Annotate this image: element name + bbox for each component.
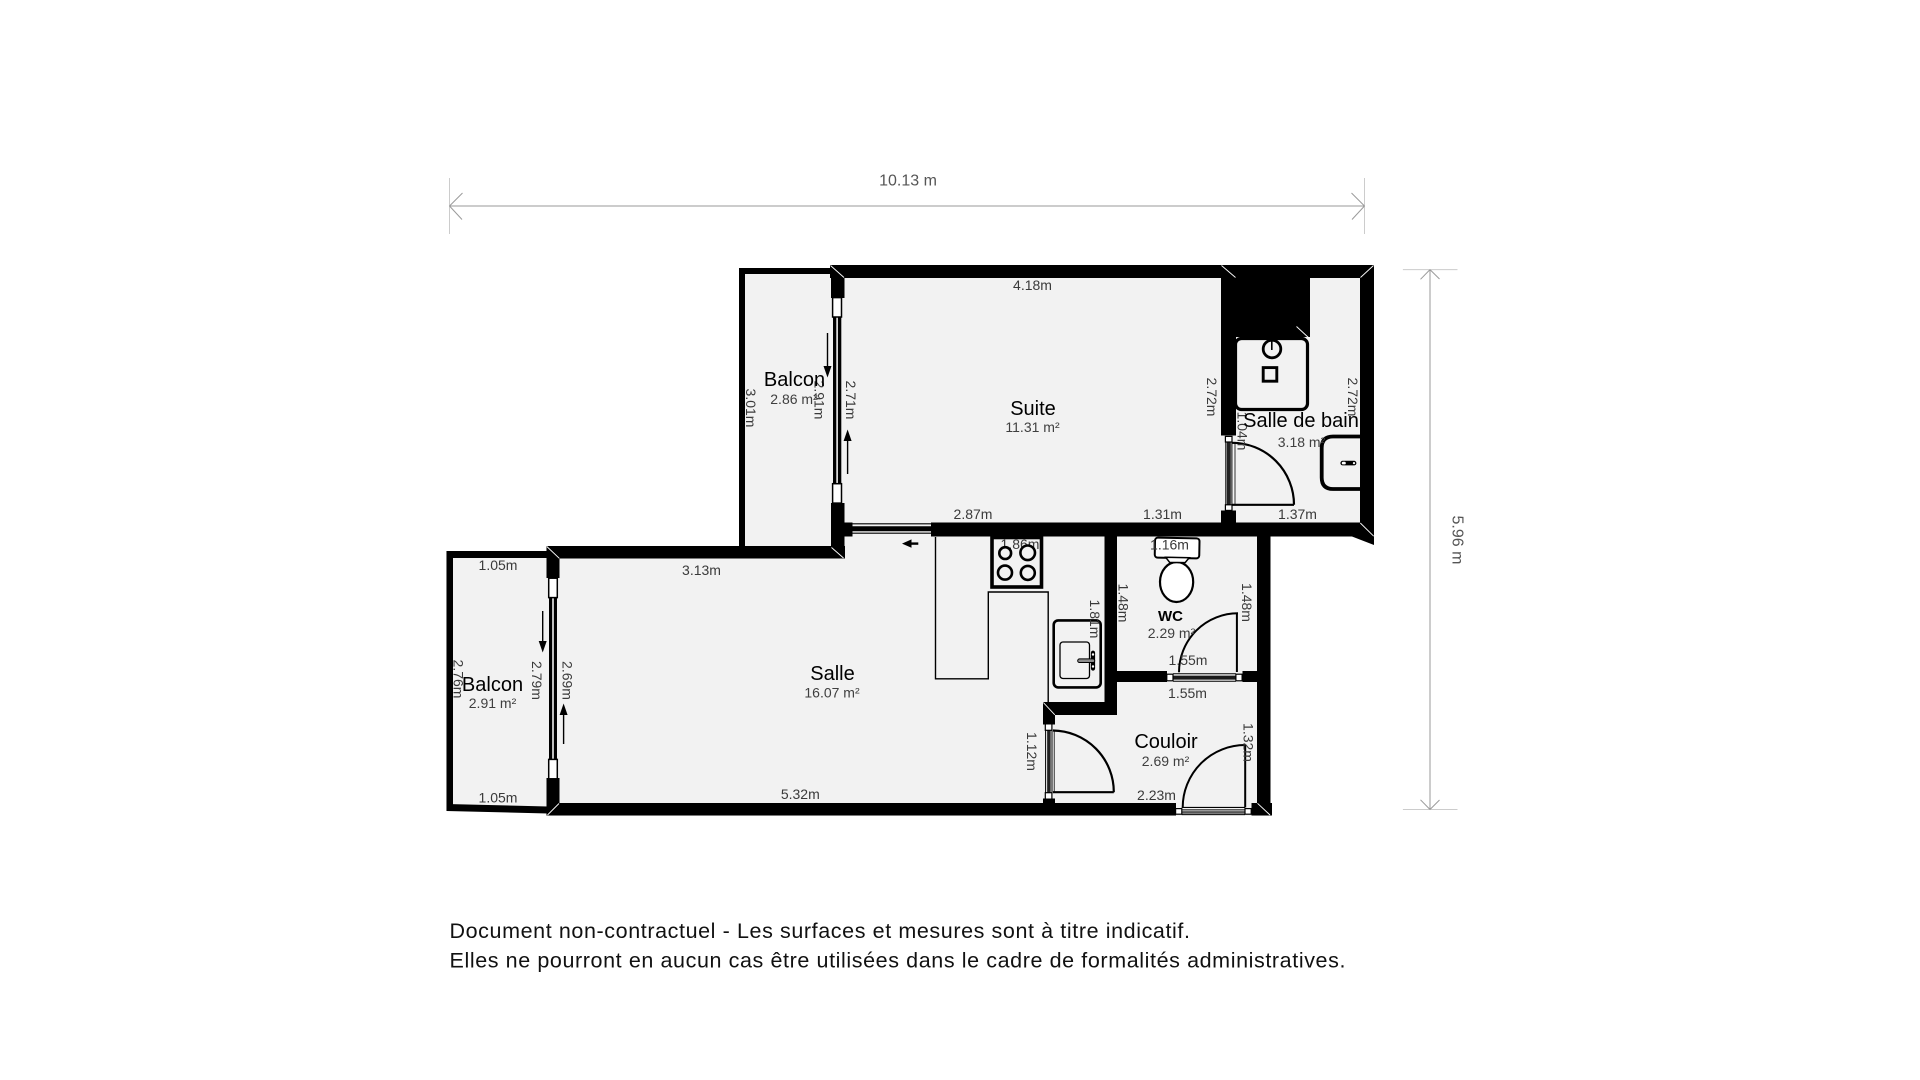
- svg-text:Salle: Salle: [810, 663, 854, 685]
- svg-text:Balcon: Balcon: [764, 369, 825, 391]
- svg-text:11.31 m²: 11.31 m²: [1005, 419, 1060, 435]
- svg-text:2.29 m²: 2.29 m²: [1148, 625, 1196, 641]
- svg-text:10.13 m: 10.13 m: [879, 173, 937, 190]
- svg-text:16.07 m²: 16.07 m²: [804, 684, 860, 700]
- svg-text:1.48m: 1.48m: [1239, 583, 1255, 622]
- svg-text:2.79m: 2.79m: [529, 661, 545, 700]
- svg-text:Salle de bain: Salle de bain: [1243, 410, 1359, 432]
- svg-text:1.12m: 1.12m: [1024, 732, 1040, 771]
- svg-text:2.69 m²: 2.69 m²: [1142, 753, 1190, 769]
- svg-text:Elles ne pourront en aucun cas: Elles ne pourront en aucun cas être util…: [450, 949, 1347, 973]
- svg-text:1.05m: 1.05m: [479, 557, 518, 573]
- svg-text:3.18 m²: 3.18 m²: [1278, 434, 1326, 450]
- svg-text:2.87m: 2.87m: [954, 506, 993, 522]
- svg-text:3.01m: 3.01m: [743, 389, 759, 428]
- svg-text:Balcon: Balcon: [462, 674, 523, 696]
- svg-text:1.81m: 1.81m: [1087, 600, 1103, 639]
- svg-text:Suite: Suite: [1010, 398, 1056, 420]
- svg-text:1.32m: 1.32m: [1241, 723, 1257, 762]
- svg-text:1.16m: 1.16m: [1150, 537, 1189, 553]
- svg-text:2.91 m²: 2.91 m²: [469, 695, 517, 711]
- svg-text:1.48m: 1.48m: [1116, 584, 1132, 623]
- svg-text:2.71m: 2.71m: [843, 381, 859, 420]
- svg-text:1.37m: 1.37m: [1278, 506, 1317, 522]
- svg-text:1.31m: 1.31m: [1143, 506, 1182, 522]
- svg-text:5.32m: 5.32m: [781, 786, 820, 802]
- svg-text:1.05m: 1.05m: [479, 790, 518, 806]
- svg-text:3.13m: 3.13m: [682, 562, 721, 578]
- svg-text:Document non-contractuel - Les: Document non-contractuel - Les surfaces …: [450, 919, 1191, 943]
- svg-text:4.18m: 4.18m: [1013, 277, 1052, 293]
- svg-text:Couloir: Couloir: [1134, 731, 1198, 753]
- svg-text:2.23m: 2.23m: [1137, 787, 1176, 803]
- svg-text:2.86 m²: 2.86 m²: [770, 391, 818, 407]
- svg-text:WC: WC: [1158, 608, 1183, 625]
- svg-text:1.55m: 1.55m: [1169, 652, 1208, 668]
- svg-text:1.55m: 1.55m: [1168, 685, 1207, 701]
- svg-text:5.96 m: 5.96 m: [1449, 516, 1466, 565]
- svg-text:2.72m: 2.72m: [1204, 378, 1220, 417]
- svg-text:2.69m: 2.69m: [560, 661, 576, 700]
